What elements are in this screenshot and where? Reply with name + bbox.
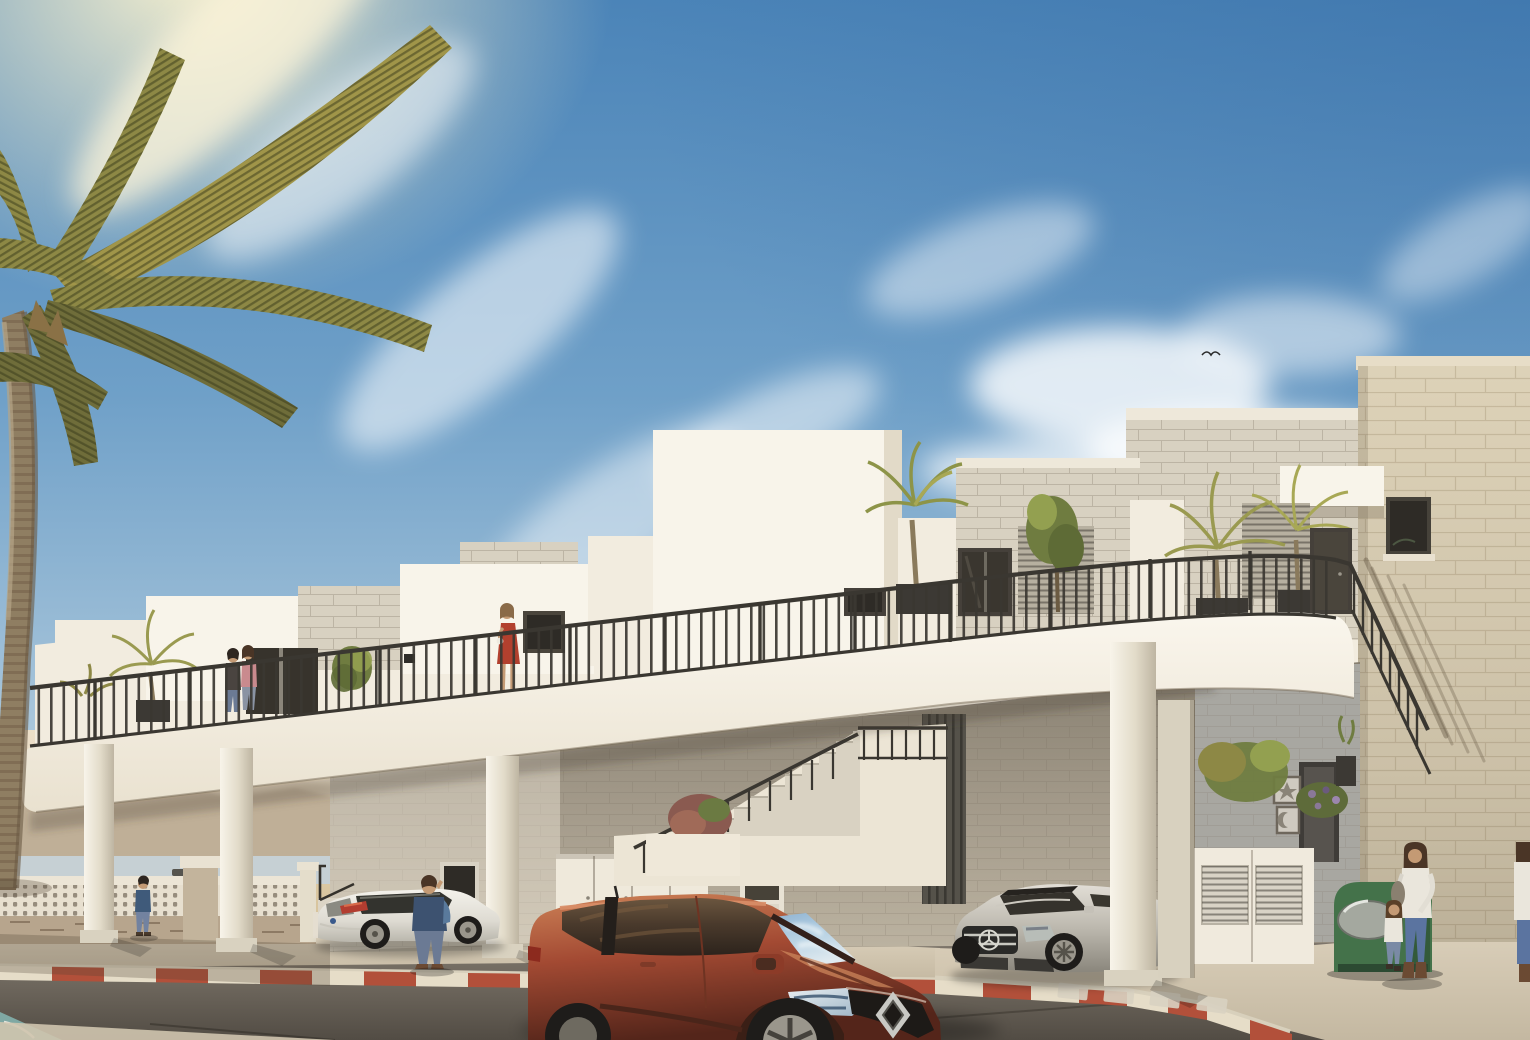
headlight-inner	[1026, 928, 1048, 929]
scene-svg	[0, 0, 1530, 1040]
wing-window	[1383, 497, 1435, 561]
taillight-sliver	[528, 946, 541, 962]
wheel-rear	[952, 936, 980, 964]
rendering-canvas	[0, 0, 1530, 1040]
side-mirror	[752, 954, 784, 974]
wheel	[1045, 933, 1083, 971]
fence-pillar	[180, 856, 221, 942]
picture-frame-shell	[1277, 807, 1299, 833]
oval-badge	[330, 918, 336, 924]
wheel	[454, 916, 482, 944]
door-handle	[640, 962, 656, 967]
mirror	[1084, 906, 1094, 913]
fence-cap	[0, 876, 316, 885]
patio-gate	[1190, 848, 1314, 964]
square-pillar	[1158, 700, 1195, 978]
wheel	[360, 919, 390, 949]
container-base	[1338, 964, 1428, 972]
